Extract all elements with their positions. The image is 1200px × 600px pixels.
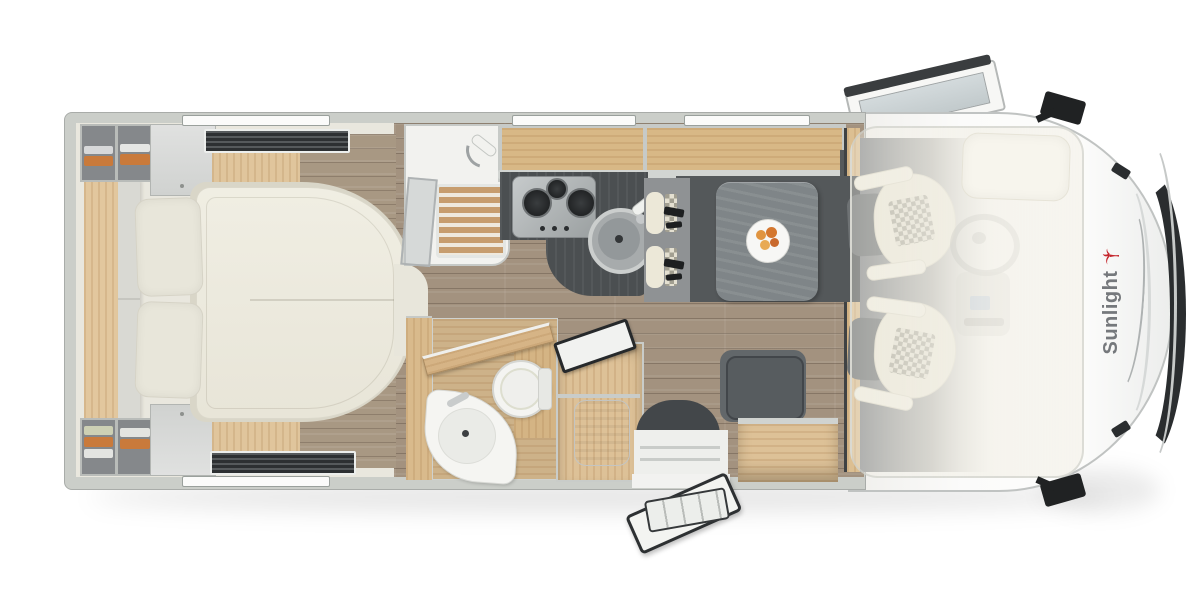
- sideboard: [738, 418, 838, 482]
- window-bottom-bedroom: [182, 476, 330, 487]
- locker-handle: [180, 184, 184, 188]
- folded-clothes: [84, 437, 113, 447]
- bed-mattress-seam: [250, 299, 396, 301]
- hob-knob: [540, 226, 545, 231]
- washbasin-drain: [462, 430, 469, 437]
- bed-pillow-bottom: [134, 301, 203, 399]
- roof-vent-rear: [210, 451, 356, 475]
- boiler-cylinder: [574, 400, 630, 466]
- window-top-dinette: [684, 115, 810, 126]
- fruit: [766, 227, 777, 238]
- entry-well: [634, 430, 728, 478]
- hob-burner-center: [546, 178, 568, 200]
- toilet-hinge: [538, 368, 552, 410]
- roof-vent-front: [204, 129, 350, 153]
- sink-drain: [615, 235, 623, 243]
- window-top-bedroom: [182, 115, 330, 126]
- hob-knob: [564, 226, 569, 231]
- fruit: [756, 230, 766, 240]
- toilet-lid-ring: [500, 368, 542, 410]
- drop-down-bed-pillow: [961, 132, 1071, 202]
- bed-pillow-top: [134, 197, 203, 297]
- bed-mattress-stitch: [206, 197, 394, 409]
- entry-well-tread: [640, 458, 720, 461]
- hob-burner-right: [566, 188, 596, 218]
- rear-wardrobe-panel: [84, 182, 118, 418]
- folded-clothes: [84, 426, 113, 435]
- overhead-locker-divider: [643, 128, 647, 172]
- folded-clothes: [120, 154, 150, 165]
- folded-clothes: [120, 428, 150, 437]
- folded-clothes: [84, 146, 113, 154]
- entry-well-tread: [640, 446, 720, 449]
- bench-cushion-2: [646, 246, 664, 288]
- window-top-kitchen: [512, 115, 636, 126]
- fruit: [760, 240, 770, 250]
- folded-clothes: [120, 144, 150, 152]
- folded-clothes: [84, 449, 113, 458]
- shower-teak-mat: [436, 184, 506, 258]
- floorplan-stage: Sunlight: [0, 0, 1200, 600]
- bench-cushion-1: [646, 192, 664, 234]
- nose-rim-line: [1126, 142, 1177, 464]
- locker-handle: [180, 412, 184, 416]
- folded-clothes: [120, 439, 150, 449]
- overhead-locker-wood: [502, 128, 842, 172]
- wardrobe-top-left-cell-2: [118, 126, 152, 180]
- fruit: [770, 238, 779, 247]
- folded-clothes: [84, 156, 113, 166]
- side-seat-pad: [726, 356, 804, 420]
- wardrobe-shelf: [556, 394, 640, 398]
- hob-knob: [552, 226, 557, 231]
- bed-headboard-seam: [118, 298, 140, 300]
